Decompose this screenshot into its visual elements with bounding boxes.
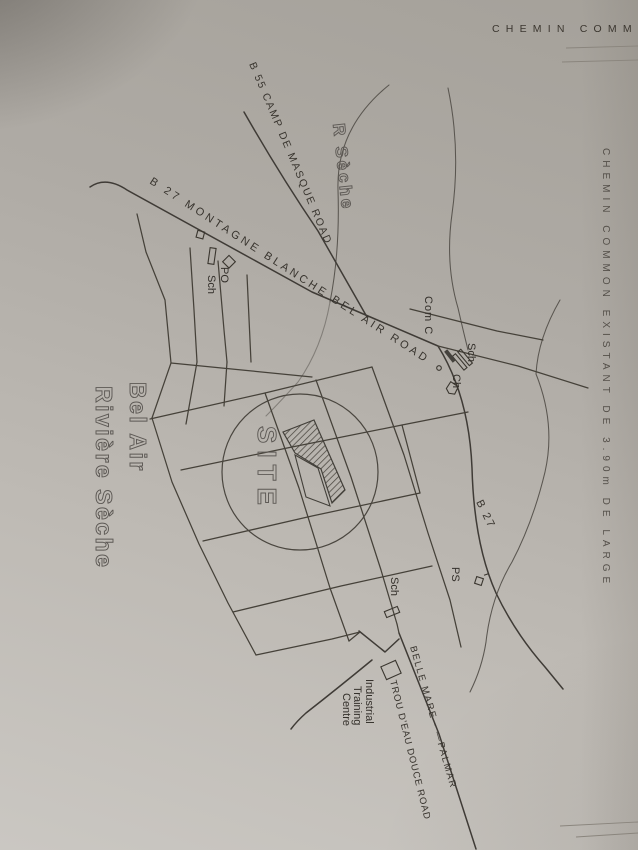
com-centre-dot <box>437 366 442 371</box>
label-itc-line-3: Centre <box>340 693 352 726</box>
label-bel-air: Bel Air <box>125 382 151 473</box>
label-river-seche: R Sèche <box>329 122 357 212</box>
village-streets <box>137 214 588 655</box>
site-parcel-hatched <box>283 420 345 503</box>
post-office-building <box>196 230 205 239</box>
ruled-lines <box>560 46 638 837</box>
label-school-south: Sch <box>388 577 400 596</box>
label-site: SITE <box>252 426 282 512</box>
label-community-centre: Com C <box>422 296 434 335</box>
school-west-building <box>208 248 216 265</box>
river-lines <box>266 85 560 692</box>
label-school-east: Sch <box>465 343 477 362</box>
road-b27 <box>90 182 563 689</box>
label-riviere-seche: Rivière Sèche <box>91 386 117 569</box>
itc-building <box>381 660 401 679</box>
school-south-building <box>384 606 399 617</box>
label-school-west: Sch <box>205 275 217 294</box>
label-post-office: PO <box>218 267 230 283</box>
scanned-map-sheet: CHEMIN COMM CHEMIN COMMON EXISTANT DE 3.… <box>0 0 638 850</box>
police-station-building <box>475 570 489 586</box>
label-b27-road: B 27 MONTAGNE BLANCHE BEL AIR ROAD <box>147 175 431 366</box>
sheet-top-note: CHEMIN COMM <box>492 23 638 35</box>
label-itc-line-1: Industrial <box>363 679 375 724</box>
label-church: Ch <box>450 374 462 388</box>
site-location-map: CHEMIN COMM CHEMIN COMMON EXISTANT DE 3.… <box>0 0 638 850</box>
sheet-side-note: CHEMIN COMMON EXISTANT DE 3.90m DE LARGE <box>600 148 611 588</box>
label-b55-road: B 55 CAMP DE MASQUE ROAD <box>246 60 334 246</box>
label-police-station: PS <box>449 567 461 582</box>
